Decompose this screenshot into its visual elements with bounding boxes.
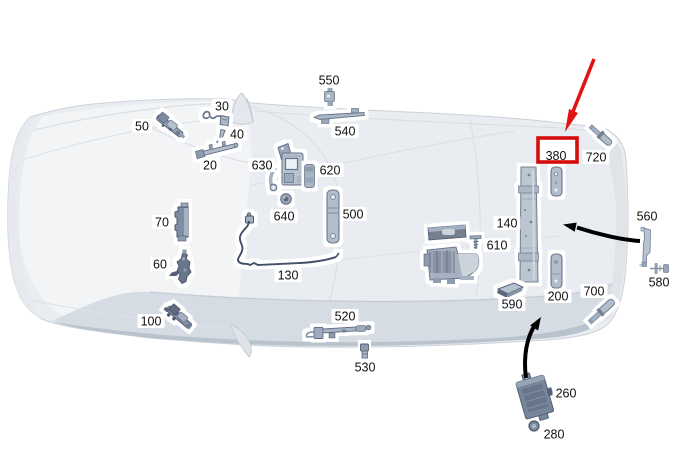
svg-text:700: 700 <box>584 285 605 299</box>
svg-text:70: 70 <box>155 216 169 230</box>
svg-text:560: 560 <box>637 210 658 224</box>
svg-text:280: 280 <box>544 428 565 442</box>
svg-text:640: 640 <box>274 210 295 224</box>
svg-text:520: 520 <box>335 310 356 324</box>
svg-text:630: 630 <box>252 159 273 173</box>
svg-text:620: 620 <box>320 164 341 178</box>
svg-text:610: 610 <box>487 239 508 253</box>
svg-text:140: 140 <box>497 217 518 231</box>
svg-text:540: 540 <box>335 125 356 139</box>
svg-text:100: 100 <box>141 315 162 329</box>
svg-text:260: 260 <box>556 387 577 401</box>
svg-text:200: 200 <box>548 290 569 304</box>
svg-text:550: 550 <box>319 74 340 88</box>
svg-text:580: 580 <box>649 276 670 290</box>
svg-text:20: 20 <box>203 159 217 173</box>
svg-text:720: 720 <box>586 151 607 165</box>
svg-text:590: 590 <box>502 298 523 312</box>
svg-text:60: 60 <box>153 258 167 272</box>
svg-text:500: 500 <box>343 208 364 222</box>
svg-text:50: 50 <box>135 120 149 134</box>
svg-text:30: 30 <box>215 100 229 114</box>
svg-text:530: 530 <box>355 361 376 375</box>
svg-text:130: 130 <box>278 269 299 283</box>
svg-text:380: 380 <box>546 149 567 163</box>
svg-text:40: 40 <box>230 128 244 142</box>
